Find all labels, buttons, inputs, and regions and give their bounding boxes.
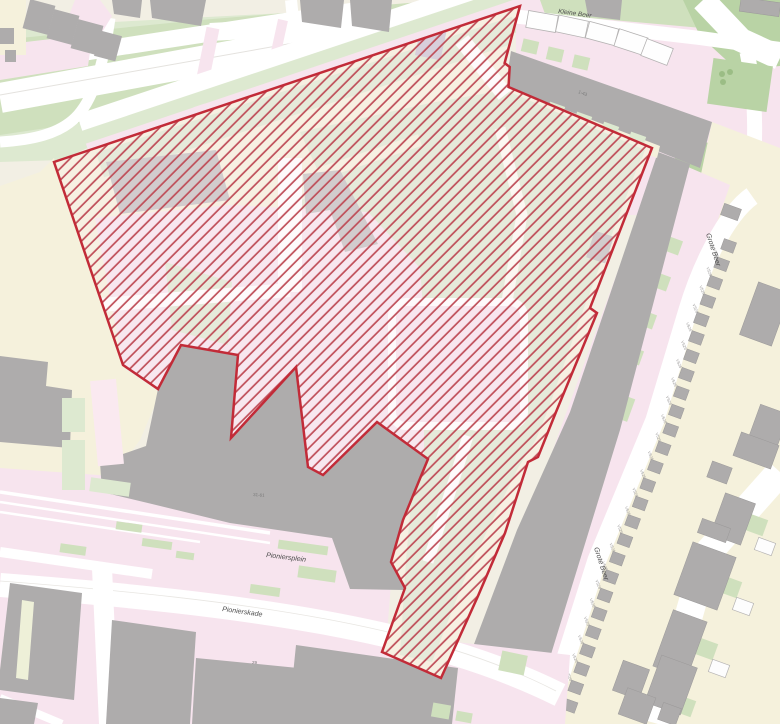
svg-text:31-61: 31-61 [253, 492, 265, 498]
svg-text:29: 29 [252, 660, 258, 665]
